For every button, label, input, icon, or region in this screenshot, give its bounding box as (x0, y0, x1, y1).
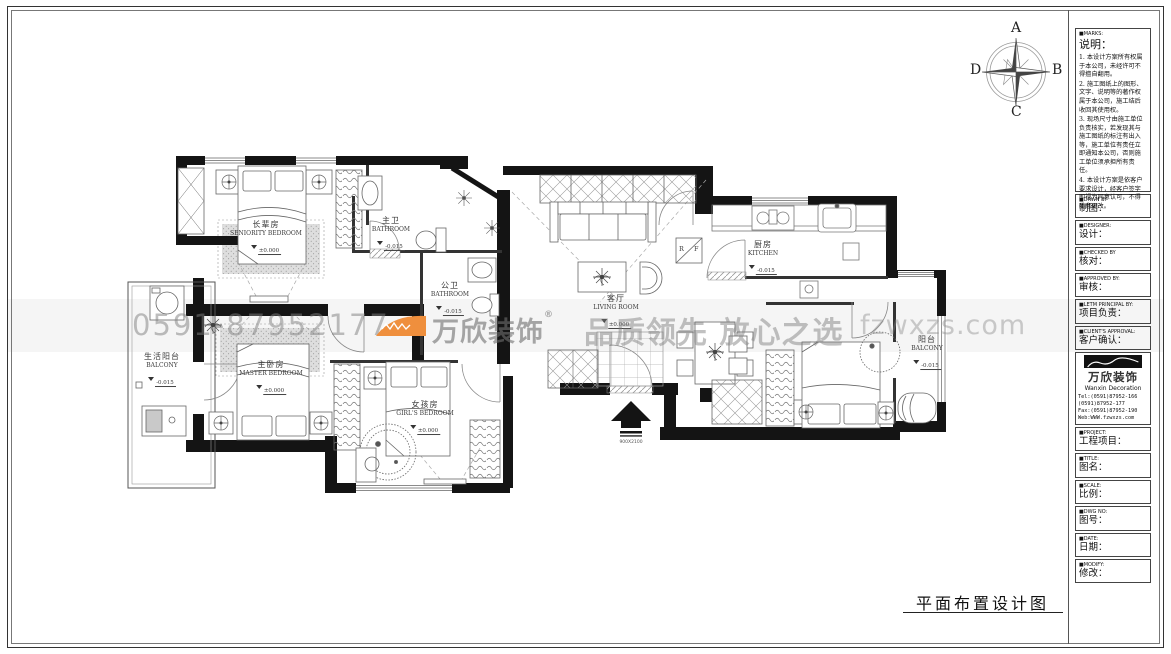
compass-letter-top: A (1011, 20, 1021, 36)
approved-by-box: ■APPROVED BY: 审核： (1075, 273, 1151, 297)
company-tel-1: Tel:(0591)87952-166 (1078, 394, 1148, 401)
compass-letter-left: D (970, 62, 981, 78)
fridge-label: R F (679, 245, 702, 253)
company-fax: Fax:(0591)87952-190 (1078, 408, 1148, 415)
company-tel-2: (0591)87952-177 (1078, 401, 1148, 408)
company-logo-icon (1084, 355, 1142, 368)
company-brand-box: 万欣装饰 Wanxin Decoration Tel:(0591)87952-1… (1075, 352, 1151, 425)
scale-box: ■SCALE: 比例： (1075, 480, 1151, 504)
room-label-master-bathroom: 主卫 BATHROOM -0.015 (372, 216, 410, 252)
company-name-cn: 万欣装饰 (1078, 369, 1148, 385)
drawing-title-underline (903, 612, 1063, 613)
designer-box: ■DESIGNER: 设计： (1075, 220, 1151, 244)
room-label-life-balcony: 生活阳台 BALCONY -0.015 (144, 352, 180, 388)
title-block: ■MARKS: 说明： 1. 本设计方案所有权属于本公司，未经许可不得擅自翻用。… (1068, 10, 1156, 644)
compass-letter-bottom: C (1011, 104, 1022, 120)
room-label-public-bathroom: 公卫 BATHROOM -0.015 (431, 281, 469, 317)
room-label-balcony: 阳台 BALCONY -0.015 (911, 335, 942, 371)
marks-box: ■MARKS: 说明： 1. 本设计方案所有权属于本公司，未经许可不得擅自翻用。… (1075, 28, 1151, 192)
date-box: ■DATE: 日期： (1075, 533, 1151, 557)
room-label-master-bedroom: 主卧房 MASTER BEDROOM ±0.000 (239, 360, 303, 396)
room-label-living-room: 客厅 LIVING ROOM ±0.000 (593, 294, 639, 330)
room-label-girl-bedroom: 女孩房 GIRL'S BEDROOM ±0.000 (396, 400, 453, 436)
modify-box: ■MODIFY: 修改： (1075, 559, 1151, 583)
note-2: 2. 施工图纸上的图形、文字、说明等的著作权属于本公司，施工结后收回其使用权。 (1079, 81, 1147, 115)
entry-door-size: 900X2100 (619, 440, 642, 445)
floor-plan-svg (0, 0, 1068, 654)
company-name-en: Wanxin Decoration (1078, 385, 1148, 392)
room-label-kitchen: 厨房 KITCHEN -0.015 (748, 240, 778, 276)
checked-by-box: ■CHECKED BY 核对： (1075, 247, 1151, 271)
company-web: Web:WWW.fzwxzs.com (1078, 415, 1148, 422)
compass-letter-right: B (1052, 62, 1062, 78)
title-box: ■TITLE: 图名： (1075, 453, 1151, 477)
compass-rose: A B C D (970, 22, 1062, 122)
project-principal-box: ■LETM PRINCIPAL BY: 项目负责： (1075, 299, 1151, 323)
client-approval-box: ■CLIENT'S APPROVAL: 客户确认： (1075, 326, 1151, 350)
drawing-title: 平面布置设计图 (916, 590, 1049, 614)
note-3: 3. 现场尺寸由施工单位负责核实，若发现其与施工图纸的标注有出入等，施工单位有责… (1079, 116, 1147, 176)
project-box: ■PROJECT: 工程项目： (1075, 427, 1151, 451)
note-1: 1. 本设计方案所有权属于本公司，未经许可不得擅自翻用。 (1079, 54, 1147, 80)
room-label-seniority-bedroom: 长辈房 SENIORITY BEDROOM ±0.000 (230, 220, 302, 256)
dwg-no-box: ■DWG NO: 图号： (1075, 506, 1151, 530)
